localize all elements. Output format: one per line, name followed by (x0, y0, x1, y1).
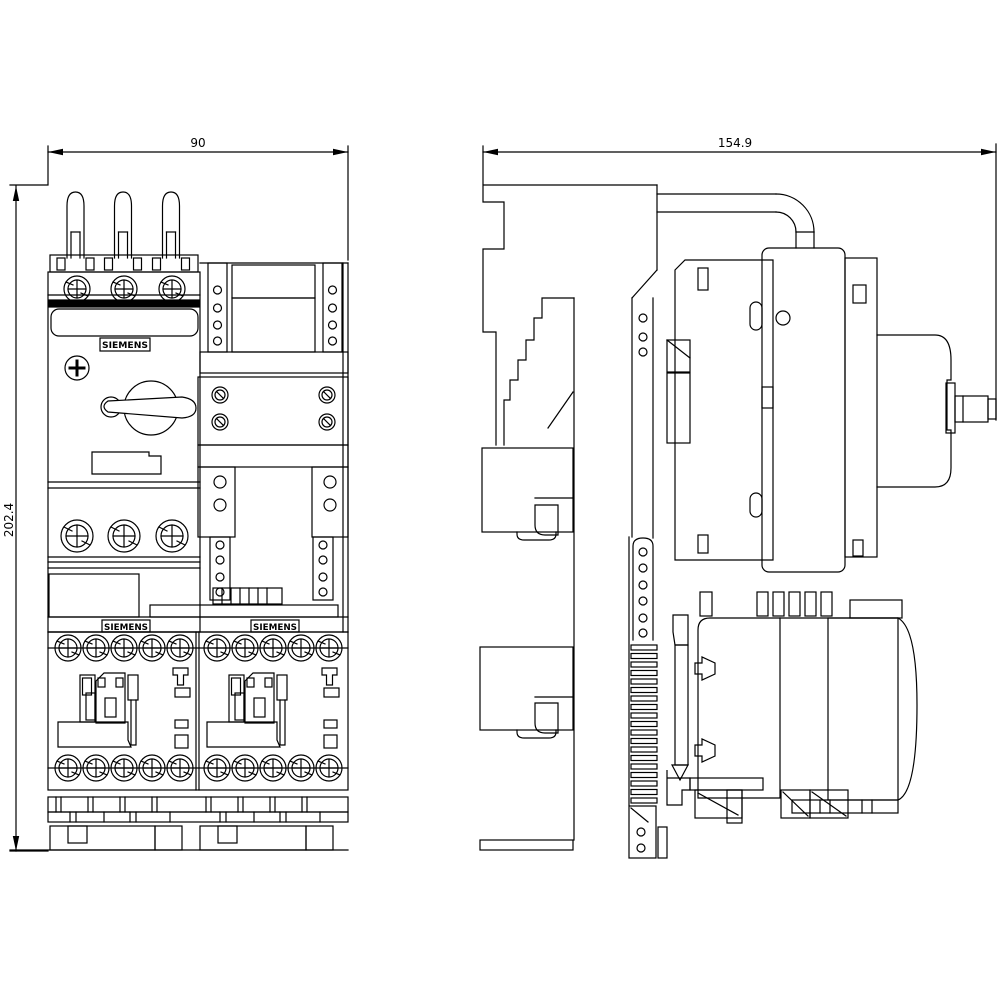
mounting-feet (50, 826, 333, 850)
contactor-side (667, 592, 917, 823)
dim-arrow-right (981, 149, 996, 155)
fixing-screw (65, 356, 89, 380)
stepped-profile (504, 298, 574, 445)
dim-arrow-right (333, 149, 348, 155)
circuit-breaker-side (657, 194, 996, 572)
breaker-lower-box (49, 574, 139, 617)
dim-arrow-left (48, 149, 63, 155)
bottom-latch-parts (667, 770, 848, 823)
contactor-mechanism-right (207, 668, 339, 748)
side-view: 154.9 (480, 136, 996, 858)
front-base-rail (10, 797, 348, 850)
dim-value-front-width: 90 (190, 136, 205, 150)
dim-arrow-bottom (13, 836, 19, 851)
contactor-foot-strip (792, 800, 898, 813)
dim-arrow-top (13, 186, 19, 201)
terminal-screw (111, 276, 137, 302)
aux-contact-tab (173, 668, 188, 685)
siemens-label-breaker: SIEMENS (102, 341, 148, 351)
dimension-front-width: 90 (48, 136, 348, 260)
dim-value-front-height: 202.4 (2, 503, 16, 537)
breaker-dark-bar (49, 300, 199, 307)
terminal-screw (61, 520, 93, 552)
wiring-duct (657, 194, 814, 248)
link-module-front (150, 263, 348, 632)
front-view: 90 202.4 (2, 136, 348, 851)
terminal-row-side (757, 592, 902, 618)
din-rail-strip-side (629, 298, 667, 858)
dimension-side-depth: 154.9 (483, 136, 996, 420)
breaker-front-bulge (877, 335, 951, 487)
side-base-plate (480, 840, 573, 850)
circuit-breaker-front: SIEMENS (48, 272, 200, 632)
terminal-screw (108, 520, 140, 552)
rating-plate (92, 452, 161, 474)
dim-arrow-left (483, 149, 498, 155)
ventilation-fins (631, 645, 657, 803)
terminal-screw (156, 520, 188, 552)
dimension-front-height: 202.4 (2, 185, 48, 851)
terminal-screw (159, 276, 185, 302)
dim-value-side-depth: 154.9 (718, 136, 752, 150)
rotary-shaft (946, 383, 996, 433)
foot-peg (658, 827, 667, 858)
technical-drawing-page: 90 202.4 (0, 0, 1000, 1000)
rotary-handle[interactable] (101, 381, 196, 435)
technical-drawing-canvas: 90 202.4 (0, 0, 1000, 1000)
contactors-front: SIEMENS SIEMENS (48, 617, 348, 790)
contactor-mechanism-left (58, 668, 190, 748)
terminal-screw (64, 276, 90, 302)
breaker-pins (67, 192, 180, 258)
